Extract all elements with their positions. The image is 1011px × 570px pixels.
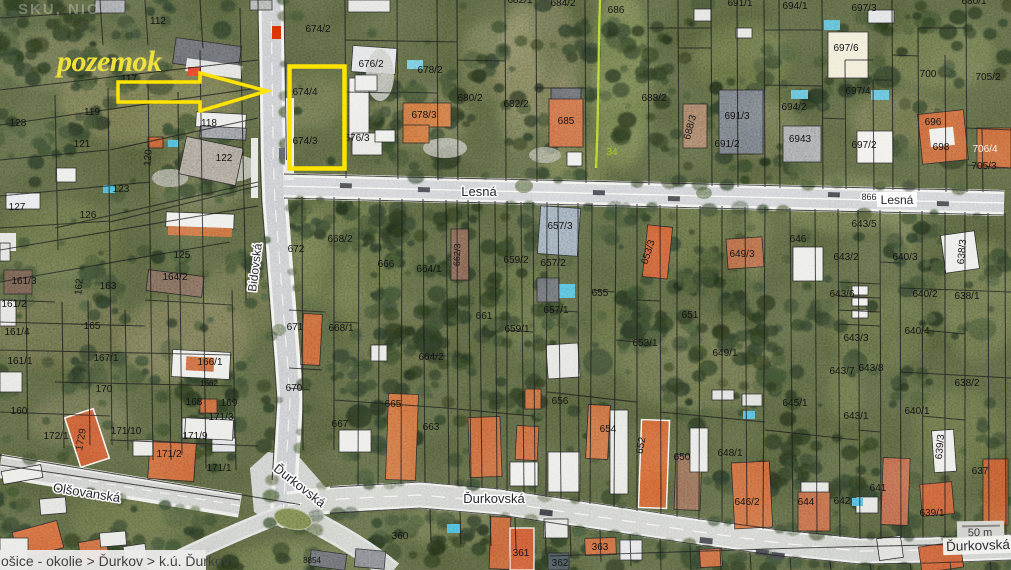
svg-text:706/4: 706/4 [972, 144, 997, 155]
svg-text:694/2: 694/2 [781, 102, 806, 113]
svg-text:8854: 8854 [303, 556, 321, 565]
svg-text:SKU, NIC: SKU, NIC [18, 1, 100, 18]
svg-text:125: 125 [174, 250, 191, 261]
svg-text:651: 651 [682, 310, 699, 321]
svg-text:161/3: 161/3 [11, 276, 36, 287]
svg-text:691/1: 691/1 [727, 0, 752, 9]
svg-text:161/1: 161/1 [7, 356, 32, 367]
svg-text:680/2: 680/2 [457, 93, 482, 104]
svg-text:685: 685 [558, 116, 575, 127]
svg-text:639/1: 639/1 [919, 508, 944, 519]
svg-text:657/2: 657/2 [540, 258, 565, 269]
svg-text:6943: 6943 [789, 134, 812, 145]
svg-text:667: 667 [332, 419, 349, 430]
svg-text:171/3: 171/3 [208, 412, 233, 423]
svg-text:166/1: 166/1 [197, 357, 222, 368]
svg-text:696: 696 [925, 117, 942, 128]
svg-text:640/2: 640/2 [912, 289, 937, 300]
svg-text:664/2: 664/2 [418, 352, 443, 363]
svg-text:Ďurkovská: Ďurkovská [946, 537, 1011, 554]
svg-text:866: 866 [861, 192, 876, 202]
svg-text:360: 360 [392, 531, 409, 542]
svg-text:676/2: 676/2 [358, 59, 383, 70]
svg-text:680/1: 680/1 [961, 0, 986, 7]
svg-text:674/4: 674/4 [292, 87, 317, 98]
svg-text:705/2: 705/2 [975, 72, 1000, 83]
svg-text:Lesná: Lesná [881, 193, 914, 207]
svg-text:654: 654 [600, 424, 617, 435]
svg-text:169: 169 [221, 398, 238, 409]
svg-text:691/3: 691/3 [724, 111, 749, 122]
svg-text:655: 655 [592, 288, 609, 299]
svg-text:112: 112 [150, 16, 166, 27]
svg-text:640/1: 640/1 [904, 406, 929, 417]
svg-text:697/6: 697/6 [833, 43, 858, 54]
svg-text:697/4: 697/4 [845, 86, 870, 97]
svg-text:668/2: 668/2 [327, 234, 352, 245]
svg-text:684/2: 684/2 [550, 0, 575, 9]
svg-text:121: 121 [74, 139, 91, 150]
svg-text:686: 686 [608, 5, 625, 16]
svg-text:697/3: 697/3 [851, 3, 876, 14]
svg-text:674/3: 674/3 [292, 136, 317, 147]
svg-text:656: 656 [552, 396, 569, 407]
svg-text:643/2: 643/2 [833, 252, 858, 263]
svg-text:643/7: 643/7 [829, 366, 854, 377]
svg-text:653/1: 653/1 [632, 338, 657, 349]
svg-text:167/1: 167/1 [93, 353, 118, 364]
svg-text:638/1: 638/1 [954, 291, 979, 302]
svg-text:661: 661 [476, 311, 493, 322]
svg-text:643/5: 643/5 [851, 219, 876, 230]
svg-text:705/3: 705/3 [971, 161, 996, 172]
svg-text:171/1: 171/1 [206, 463, 231, 474]
svg-text:644: 644 [798, 497, 815, 508]
svg-text:678/3: 678/3 [411, 110, 436, 121]
svg-text:698: 698 [933, 142, 950, 153]
svg-text:643/8: 643/8 [858, 363, 883, 374]
svg-text:650: 650 [674, 452, 691, 463]
svg-text:638/2: 638/2 [954, 378, 979, 389]
svg-text:1662: 1662 [200, 379, 218, 388]
svg-text:170: 170 [96, 384, 113, 395]
svg-text:642: 642 [834, 496, 851, 507]
svg-text:638/3: 638/3 [956, 238, 969, 264]
svg-text:363: 363 [592, 542, 609, 553]
svg-text:172/1: 172/1 [43, 431, 68, 442]
svg-text:666: 666 [378, 259, 395, 270]
svg-text:120: 120 [142, 149, 154, 167]
svg-text:123: 123 [113, 184, 130, 195]
svg-text:659/1: 659/1 [504, 324, 529, 335]
svg-text:637: 637 [972, 466, 989, 477]
svg-text:657/3: 657/3 [547, 221, 572, 232]
svg-text:Lesná: Lesná [461, 184, 497, 199]
svg-text:668/1: 668/1 [328, 323, 353, 334]
svg-text:640/3: 640/3 [892, 252, 917, 263]
svg-text:161/4: 161/4 [4, 327, 29, 338]
svg-text:678/2: 678/2 [417, 65, 442, 76]
svg-text:649/3: 649/3 [729, 249, 754, 260]
svg-text:171/2: 171/2 [156, 449, 181, 460]
svg-text:162: 162 [73, 278, 85, 296]
svg-text:168: 168 [186, 397, 203, 408]
svg-text:362: 362 [552, 558, 569, 569]
svg-text:643/6: 643/6 [829, 289, 854, 300]
svg-text:ošice - okolie > Ďurkov > k.ú.: ošice - okolie > Ďurkov > k.ú. Ďurkov [1, 553, 230, 569]
svg-text:Ďurkovská: Ďurkovská [463, 491, 525, 506]
svg-text:128: 128 [10, 118, 27, 129]
svg-text:160: 160 [11, 406, 28, 417]
svg-text:643/1: 643/1 [843, 411, 868, 422]
svg-text:639/3: 639/3 [934, 433, 947, 459]
svg-text:643/3: 643/3 [843, 333, 868, 344]
svg-text:657/1: 657/1 [543, 305, 568, 316]
svg-text:171/10: 171/10 [111, 426, 142, 437]
svg-text:674/2: 674/2 [305, 24, 330, 35]
svg-text:672: 672 [288, 244, 305, 255]
svg-text:645/1: 645/1 [782, 398, 807, 409]
svg-text:646: 646 [790, 234, 807, 245]
svg-text:648/1: 648/1 [717, 448, 742, 459]
svg-text:688/2: 688/2 [641, 93, 666, 104]
svg-text:682/2: 682/2 [503, 99, 528, 110]
svg-text:361: 361 [513, 548, 530, 559]
svg-text:34: 34 [606, 147, 618, 158]
svg-text:118: 118 [201, 118, 217, 129]
svg-text:126: 126 [80, 210, 97, 221]
svg-text:122: 122 [216, 153, 233, 164]
svg-text:127: 127 [9, 202, 26, 213]
svg-text:665: 665 [385, 399, 402, 410]
svg-text:700: 700 [920, 69, 937, 80]
svg-text:697/2: 697/2 [851, 140, 876, 151]
svg-text:646/2: 646/2 [734, 497, 759, 508]
svg-text:649/1: 649/1 [712, 348, 737, 359]
svg-text:662/3: 662/3 [452, 243, 463, 266]
svg-text:171/9: 171/9 [182, 431, 207, 442]
svg-text:164/2: 164/2 [162, 272, 187, 283]
svg-text:676/3: 676/3 [344, 133, 369, 144]
svg-text:163: 163 [100, 281, 117, 292]
svg-text:pozemok: pozemok [54, 45, 162, 78]
svg-text:664/1: 664/1 [416, 264, 441, 275]
svg-text:670: 670 [286, 383, 303, 394]
svg-text:694/1: 694/1 [782, 1, 807, 12]
svg-text:161/2: 161/2 [1, 299, 26, 310]
svg-text:691/2: 691/2 [714, 139, 739, 150]
svg-text:682/1: 682/1 [507, 0, 532, 6]
svg-text:640/4: 640/4 [904, 326, 929, 337]
svg-text:671: 671 [287, 322, 304, 333]
svg-text:165: 165 [84, 321, 101, 332]
svg-text:119: 119 [84, 107, 100, 118]
svg-text:659/2: 659/2 [503, 255, 528, 266]
svg-text:663: 663 [423, 422, 440, 433]
svg-text:641: 641 [870, 483, 887, 494]
